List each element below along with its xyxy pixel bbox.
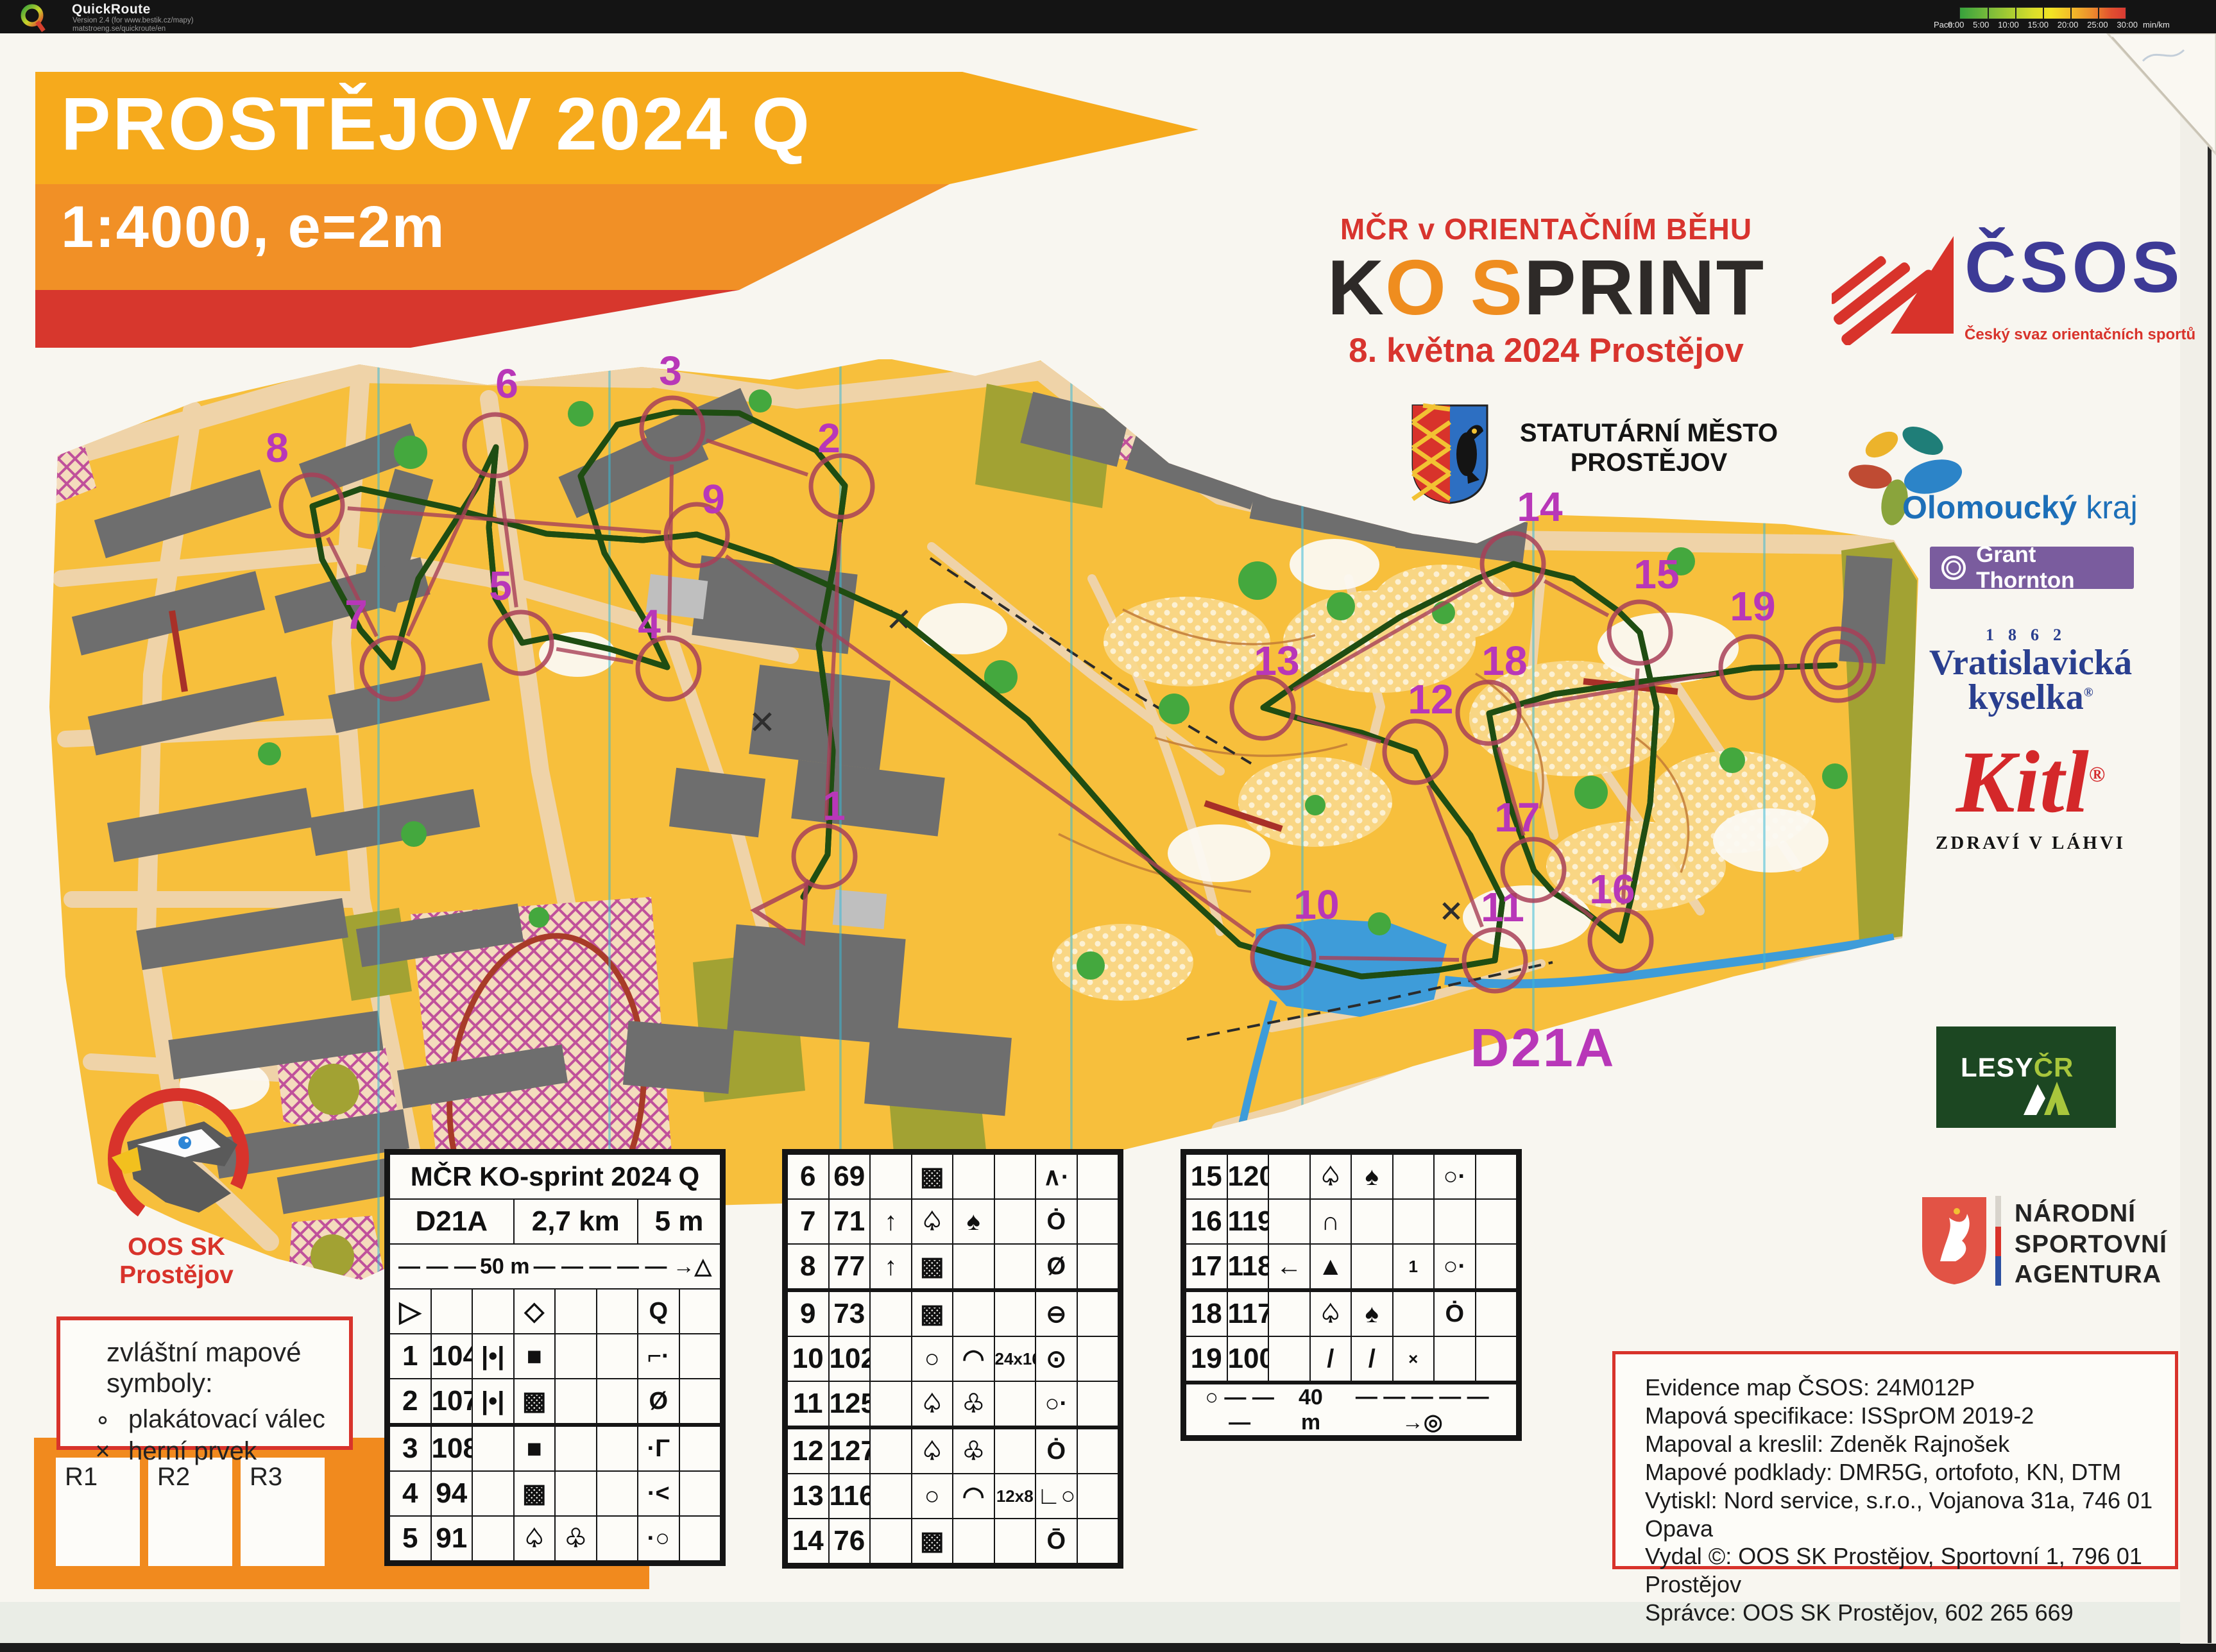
ko-letter-o: O: [1385, 244, 1447, 331]
control-descriptions-left: MČR KO-sprint 2024 QD21A2,7 km5 m— — —50…: [384, 1149, 726, 1566]
credits-line: Evidence map ČSOS: 24M012P: [1645, 1374, 2175, 1402]
olomoucky-kraj-name: Olomoucký kraj: [1902, 489, 2138, 526]
control-number-3: 3: [659, 348, 682, 394]
nsa-line2: SPORTOVNÍ: [2015, 1229, 2167, 1260]
description-row: 771↑♤♠Ȯ: [787, 1199, 1118, 1244]
description-row: 16119∩: [1186, 1199, 1517, 1244]
description-row: 18117♤♠Ȯ: [1186, 1290, 1517, 1336]
event-date: 8. května 2024 Prostějov: [1293, 331, 1800, 370]
description-row: ▷◇Q: [389, 1289, 720, 1334]
description-row: 11125♤♧○·: [787, 1381, 1118, 1427]
kyselka-line2: kyselka®: [1922, 681, 2140, 715]
relay-box: R2: [148, 1458, 232, 1566]
kitl-word: Kitl: [1956, 733, 2089, 831]
control-number-2: 2: [817, 415, 840, 461]
nsa-line3: AGENTURA: [2015, 1259, 2167, 1290]
app-url: matstroeng.se/quickroute/en: [72, 25, 166, 33]
grant-thornton-name: Grant Thornton: [1976, 542, 2134, 593]
description-row: 17118←▲1○·: [1186, 1244, 1517, 1290]
club-name: OOS SK Prostějov: [83, 1233, 269, 1290]
app-version: Version 2.4 (for www.bestik.cz/mapy): [72, 17, 194, 24]
region-bold: Olomoucký: [1902, 490, 2077, 525]
kitl-tagline: ZDRAVÍ V LÁHVI: [1922, 833, 2140, 854]
grant-thornton-icon: [1939, 553, 1967, 583]
control-number-16: 16: [1589, 866, 1635, 912]
lesy-arrows-icon: [2018, 1079, 2095, 1118]
description-row: 973▩⊖: [787, 1290, 1118, 1336]
credits-line: Vytiskl: Nord service, s.r.o., Vojanova …: [1645, 1486, 2175, 1543]
lesy-cr-name: LESYČR: [1961, 1052, 2074, 1083]
pace-tick: 20:00: [2058, 20, 2079, 30]
control-descriptions-right: 15120♤♠○·16119∩17118←▲1○·18117♤♠Ȯ19100//…: [1180, 1149, 1522, 1441]
control-number-15: 15: [1633, 551, 1679, 597]
description-row: 10102○◠24x16⊙: [787, 1336, 1118, 1381]
relay-box-label: R3: [250, 1463, 282, 1492]
control-number-19: 19: [1730, 583, 1775, 629]
pace-tick: 5:00: [1973, 20, 1989, 30]
pace-tick: 10:00: [1998, 20, 2019, 30]
description-row: 1476▩Ō: [787, 1519, 1118, 1563]
description-row: 669▩∧·: [787, 1154, 1118, 1199]
pace-tick: 15:00: [2027, 20, 2049, 30]
csos-stripes-icon: [1832, 230, 1957, 345]
kitl-name: Kitl®: [1922, 738, 2140, 826]
city-line1: STATUTÁRNÍ MĚSTO: [1501, 418, 1796, 448]
legend-item: ∘plakátovací válec: [91, 1405, 349, 1435]
credits-line: Mapoval a kreslil: Zdeněk Rajnošek: [1645, 1430, 2175, 1458]
credits-line: Vydal ©: OOS SK Prostějov, Sportovní 1, …: [1645, 1542, 2175, 1599]
pace-gradient-bar: [1959, 7, 2126, 19]
app-title: QuickRoute: [72, 2, 151, 17]
control-number-6: 6: [495, 361, 518, 407]
vratislavicka-logo: 1862 Vratislavická kyselka®: [1922, 626, 2140, 715]
city-name: STATUTÁRNÍ MĚSTO PROSTĚJOV: [1501, 418, 1796, 477]
description-row: 19100//×: [1186, 1336, 1517, 1383]
legend-title: zvláštní mapové symboly:: [107, 1337, 349, 1399]
control-number-18: 18: [1481, 638, 1527, 684]
pace-tick: 0:00: [1948, 20, 1964, 30]
control-number-13: 13: [1254, 638, 1299, 684]
description-row: 591♤♧·○: [389, 1516, 720, 1561]
description-row: 12127♤♧Ȯ: [787, 1427, 1118, 1474]
course-leg-line: [1319, 958, 1459, 960]
description-row: 2107|•|▩Ø: [389, 1379, 720, 1425]
description-row: 13116○◠12x8∟○: [787, 1474, 1118, 1519]
lesy-cr-logo: LESYČR: [1936, 1026, 2116, 1128]
control-number-14: 14: [1517, 484, 1563, 530]
nsa-name: NÁRODNÍ SPORTOVNÍ AGENTURA: [2015, 1198, 2167, 1290]
control-number-8: 8: [266, 425, 289, 471]
city-line2: PROSTĚJOV: [1501, 448, 1796, 477]
club-eagle-logo: [89, 1083, 268, 1237]
ko-letters-print: PRINT: [1524, 244, 1765, 331]
credits-line: Mapové podklady: DMR5G, ortofoto, KN, DT…: [1645, 1458, 2175, 1486]
kitl-reg: ®: [2089, 763, 2105, 787]
description-row: 1104|•|■⌐·: [389, 1334, 720, 1379]
lesy-word: LESY: [1961, 1052, 2034, 1082]
csos-name: ČSOS: [1965, 226, 2183, 309]
control-number-7: 7: [345, 592, 368, 638]
control-number-4: 4: [638, 601, 661, 647]
city-coat-of-arms: [1410, 403, 1490, 506]
control-number-11: 11: [1481, 884, 1524, 930]
quickroute-logo-icon: [18, 3, 59, 32]
ko-sprint-logo: KO SPRINT: [1293, 246, 1800, 328]
kyselka-year: 1862: [1922, 626, 2140, 645]
legend-box: zvláštní mapové symboly: ∘plakátovací vá…: [56, 1316, 353, 1450]
relay-box-label: R1: [65, 1463, 98, 1492]
description-row: 494▩·<: [389, 1471, 720, 1516]
map-class-label: D21A: [1470, 1018, 1616, 1078]
control-number-9: 9: [702, 476, 725, 522]
ko-letter-s: S: [1470, 244, 1524, 331]
region-regular: kraj: [2077, 490, 2137, 525]
kyselka-line1: Vratislavická: [1922, 645, 2140, 681]
control-number-1: 1: [822, 783, 846, 829]
pace-scale: Pace 0:005:0010:0015:0020:0025:0030:00 m…: [1930, 0, 2212, 33]
relay-box-label: R2: [157, 1463, 190, 1492]
csos-subtitle: Český svaz orientačních sportů: [1965, 326, 2195, 344]
control-number-17: 17: [1494, 794, 1540, 840]
pace-tick-labels: 0:005:0010:0015:0020:0025:0030:00: [1948, 20, 2138, 30]
map-credits-box: Evidence map ČSOS: 24M012PMapová specifi…: [1612, 1351, 2178, 1569]
description-row: 15120♤♠○·: [1186, 1154, 1517, 1199]
kyselka-reg: ®: [2084, 685, 2093, 699]
control-number-10: 10: [1293, 881, 1339, 928]
map-scale: 1:4000, e=2m: [61, 194, 445, 261]
quickroute-header: QuickRoute Version 2.4 (for www.bestik.c…: [0, 0, 2216, 33]
legend-items: ∘plakátovací válec×herní prvek: [60, 1405, 349, 1466]
description-row: 3108■·Γ: [389, 1425, 720, 1471]
credits-line: Správce: OOS SK Prostějov, 602 265 669: [1645, 1599, 2175, 1627]
pace-tick: 25:00: [2087, 20, 2108, 30]
ko-letter-k: K: [1327, 244, 1385, 331]
lesy-cr: ČR: [2034, 1052, 2074, 1082]
nsa-shield-icon: [1920, 1195, 2006, 1291]
control-descriptions-middle: 669▩∧·771↑♤♠Ȯ877↑▩Ø973▩⊖10102○◠24x16⊙111…: [782, 1149, 1123, 1569]
grant-thornton-banner: Grant Thornton: [1930, 547, 2134, 589]
nsa-line1: NÁRODNÍ: [2015, 1198, 2167, 1229]
event-header: MČR v ORIENTAČNÍM BĚHU: [1293, 212, 1800, 246]
map-title: PROSTĚJOV 2024 Q: [61, 81, 812, 167]
relay-box: R1: [56, 1458, 140, 1566]
pace-unit: min/km: [2143, 20, 2170, 30]
kitl-logo: Kitl® ZDRAVÍ V LÁHVI: [1922, 738, 2140, 854]
control-number-12: 12: [1408, 676, 1453, 722]
control-number-5: 5: [489, 563, 512, 609]
event-logo-block: MČR v ORIENTAČNÍM BĚHU KO SPRINT 8. květ…: [1293, 212, 1800, 370]
legend-item: ×herní prvek: [91, 1437, 349, 1466]
pace-tick: 30:00: [2117, 20, 2138, 30]
kyselka-word: kyselka: [1968, 677, 2084, 717]
relay-box: R3: [241, 1458, 325, 1566]
description-row: 877↑▩Ø: [787, 1244, 1118, 1290]
credits-line: Mapová specifikace: ISSprOM 2019-2: [1645, 1402, 2175, 1430]
